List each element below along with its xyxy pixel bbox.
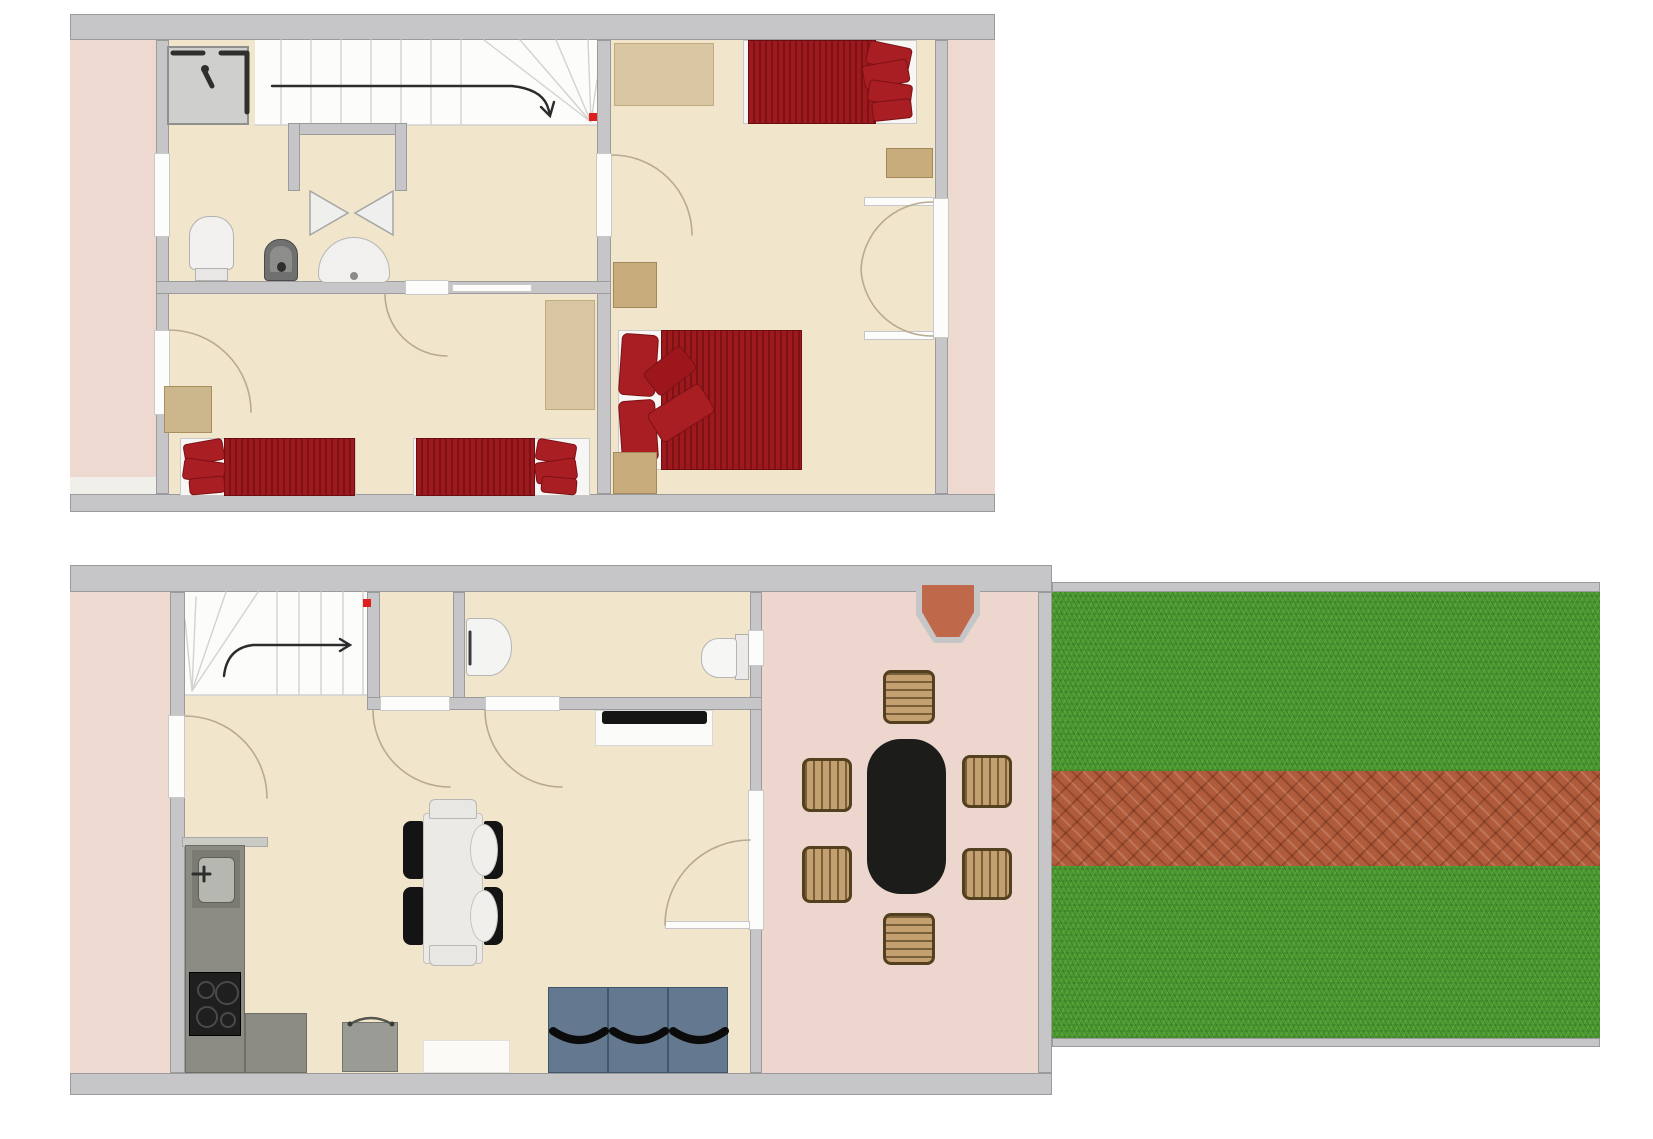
exterior-terrace-right bbox=[948, 40, 995, 494]
window-left bbox=[154, 153, 170, 237]
patio-window bbox=[748, 630, 764, 666]
rug-single-bedroom bbox=[614, 43, 714, 106]
outer-wall-bottom bbox=[70, 494, 995, 512]
door-opening-closet bbox=[380, 696, 450, 711]
wall-closet-right bbox=[395, 123, 407, 191]
smoke-detector-marker bbox=[363, 599, 371, 607]
toilet bbox=[701, 638, 737, 678]
shower bbox=[167, 46, 249, 125]
wall-patio-right bbox=[1038, 592, 1052, 1073]
single-bed-pillow bbox=[871, 98, 913, 122]
patio-chair bbox=[802, 758, 852, 812]
door-opening-bedroom-left bbox=[405, 280, 449, 295]
french-door-leaf-top bbox=[864, 197, 934, 206]
patio-door-leaf bbox=[665, 921, 750, 929]
patio-chair bbox=[883, 670, 935, 724]
nightstand bbox=[613, 452, 657, 494]
twin-bed-2-blanket bbox=[416, 438, 535, 496]
wall-closet-top bbox=[288, 123, 407, 135]
pass-window-bathroom bbox=[452, 284, 532, 292]
wall-central bbox=[597, 40, 611, 494]
french-door-leaf-bottom bbox=[864, 331, 934, 340]
dining-chair-end bbox=[429, 945, 477, 966]
wall-left bbox=[170, 592, 185, 1073]
patio-door-opening bbox=[748, 790, 764, 930]
staircase bbox=[255, 40, 597, 125]
patio-chair bbox=[962, 755, 1012, 808]
toilet-tank bbox=[195, 268, 228, 281]
patio-table bbox=[867, 739, 946, 894]
exterior-walk-left bbox=[70, 477, 156, 494]
french-door-opening bbox=[933, 198, 949, 338]
rug-twin-bedroom bbox=[545, 300, 595, 410]
patio-chair bbox=[962, 848, 1012, 900]
toilet-tank bbox=[735, 634, 749, 680]
dining-chair-seat bbox=[470, 824, 498, 876]
garden-border-bottom bbox=[1052, 1038, 1600, 1047]
exterior-terrace-left bbox=[70, 40, 156, 477]
single-bed-blanket bbox=[748, 40, 876, 124]
kitchen-cart bbox=[342, 1022, 398, 1072]
wall-closet-right bbox=[453, 592, 465, 710]
exterior-terrace-left bbox=[70, 592, 170, 1073]
garden-lawn-upper bbox=[1052, 592, 1600, 771]
sofa bbox=[548, 987, 728, 1073]
small-basin-drain bbox=[277, 262, 286, 272]
kitchen-mat bbox=[423, 1040, 510, 1073]
nightstand bbox=[886, 148, 933, 178]
dining-chair-seat bbox=[470, 890, 498, 942]
wall-closet-left bbox=[288, 123, 300, 191]
dining-chair-black bbox=[403, 821, 423, 879]
outer-wall-top bbox=[70, 14, 995, 40]
nightstand bbox=[613, 262, 657, 308]
wall-closet-left bbox=[367, 592, 380, 710]
dining-chair-black bbox=[403, 887, 423, 945]
garden-lawn-lower bbox=[1052, 866, 1600, 1038]
outer-wall-bottom bbox=[70, 1073, 1052, 1095]
garden-border-top bbox=[1052, 582, 1600, 592]
kitchen-sink-basin bbox=[198, 857, 235, 903]
outer-wall-top bbox=[70, 565, 1052, 592]
twin-bed-2-pillow bbox=[540, 475, 577, 495]
twin-bed-1-blanket bbox=[224, 438, 355, 496]
door-opening-bedroom-right bbox=[596, 153, 612, 237]
stove bbox=[189, 972, 241, 1036]
staircase bbox=[185, 592, 367, 695]
desk bbox=[164, 386, 212, 433]
door-opening-bathroom bbox=[485, 696, 560, 711]
kitchen-counter-corner bbox=[245, 1013, 307, 1073]
dining-chair-end bbox=[429, 799, 477, 819]
smoke-detector-marker bbox=[589, 113, 597, 121]
front-door-opening bbox=[168, 715, 185, 798]
wall-bathroom bbox=[156, 281, 611, 294]
patio-chair bbox=[802, 846, 852, 903]
wash-basin bbox=[466, 618, 512, 676]
twin-bed-1-pillow bbox=[188, 475, 225, 495]
toilet bbox=[189, 216, 234, 270]
tv-screen bbox=[602, 711, 707, 724]
bidet-faucet bbox=[350, 272, 358, 280]
patio-chair bbox=[883, 913, 935, 965]
garden-brick-path bbox=[1052, 771, 1600, 866]
floor-plan-canvas bbox=[0, 0, 1653, 1139]
